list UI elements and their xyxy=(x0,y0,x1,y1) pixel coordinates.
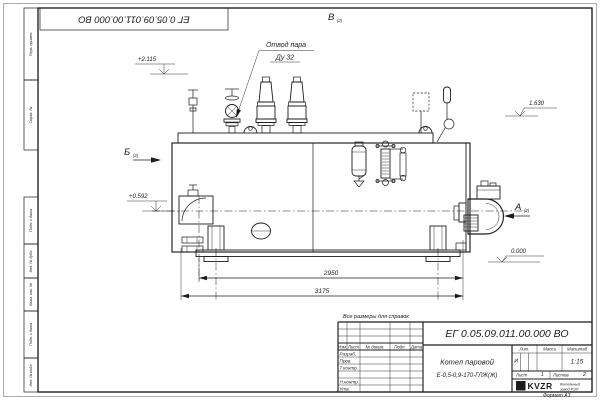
scale-value: 1:15 xyxy=(571,359,584,366)
scale-label: Масштаб xyxy=(567,347,588,352)
doc-number: ЕГ 0.05.09.011.00.000 ВО xyxy=(445,328,568,340)
drawing-canvas: Перв. примен. Справ. № Подп. и дата Инв.… xyxy=(0,0,600,400)
sheet-label: Лист xyxy=(515,373,527,378)
col-list: Лист xyxy=(347,344,359,349)
margin-label: Взам. инв. № xyxy=(29,283,33,306)
margin-label: Инв. № подл. xyxy=(29,364,33,387)
lifting-lug-left xyxy=(244,127,257,134)
view-labels: В (2) Б (2) А (2) xyxy=(124,12,530,219)
col-izm: Изм. xyxy=(338,344,347,349)
company-line2: завод РЭП xyxy=(559,388,579,392)
dimensions: 2950 3175 xyxy=(181,240,463,300)
elevation-zero: 0.000 xyxy=(488,249,544,262)
view-label-b: Б xyxy=(124,147,130,158)
view-ref-b: (2) xyxy=(133,153,139,158)
margin-label: Перв. примен. xyxy=(29,32,33,57)
row-utv: Утв. xyxy=(340,386,350,391)
margin-boxes: Перв. примен. Справ. № Подп. и дата Инв.… xyxy=(24,8,38,392)
company-logo-text: KVZR xyxy=(528,381,553,391)
skid-frame xyxy=(196,250,460,257)
svg-text:1.630: 1.630 xyxy=(529,101,545,107)
col-doc: № докум. xyxy=(366,344,385,349)
elevation-right: 1.630 xyxy=(505,101,557,116)
callout-line1: Отвод пара xyxy=(266,41,306,49)
view-ref-a: (2) xyxy=(524,208,530,213)
top-fittings xyxy=(224,77,432,133)
rear-stub xyxy=(456,243,466,250)
view-arrow-a xyxy=(504,213,514,218)
margin-label: Справ. № xyxy=(29,107,33,124)
product-model: Е-0,5-0,9-170-ГЛЖ(Ж) xyxy=(437,373,498,379)
view-ref-v: (2) xyxy=(337,18,343,23)
elbow-arc xyxy=(182,198,206,221)
top-plate xyxy=(178,133,433,143)
lit-label: Лит. xyxy=(518,347,529,352)
shell-body xyxy=(172,143,470,252)
svg-text:+2.115: +2.115 xyxy=(138,57,157,63)
row-prov: Пров. xyxy=(340,358,352,363)
burner-motor xyxy=(477,186,500,199)
sensor-box-dashed xyxy=(413,93,429,111)
kvzr-logo-letter: К xyxy=(519,383,524,390)
view-label-a: А xyxy=(514,202,521,213)
product-name: Котел паровой xyxy=(440,358,495,367)
elbow-flange xyxy=(188,190,198,196)
steam-outlet-callout: Отвод пара Ду 32 xyxy=(234,41,314,119)
elevation-top: +2.115 xyxy=(135,57,188,74)
svg-text:+0.592: +0.592 xyxy=(129,194,148,200)
separator-vessel xyxy=(352,142,366,187)
level-probe xyxy=(437,87,454,142)
elevation-marks: +2.115 +0.592 1.630 0.000 xyxy=(127,57,557,262)
boiler-shell xyxy=(172,133,470,257)
safety-valve-1 xyxy=(256,77,276,133)
margin-label: Инв. № дубл. xyxy=(29,250,33,273)
right-fittings xyxy=(352,87,454,187)
sheets-value: 2 xyxy=(582,372,586,378)
sheets-label: Листов xyxy=(552,373,569,378)
blowdown-stub-1 xyxy=(182,237,203,243)
lit-value: И xyxy=(514,359,518,365)
burner-flange-1 xyxy=(454,206,459,220)
corner-number-text: ЕГ 0.05.09.011.00.000 ВО xyxy=(78,14,190,25)
view-label-v: В xyxy=(328,12,335,23)
view-arrow-b xyxy=(151,157,161,162)
drain-tap xyxy=(189,98,197,105)
margin-label: Подп. и дата xyxy=(29,209,33,232)
mass-label: Масса xyxy=(543,347,556,352)
dim-3175: 3175 xyxy=(315,288,330,295)
row-razrab: Разраб. xyxy=(340,351,357,356)
blowdown-stub-2 xyxy=(182,246,203,252)
elevation-axis: +0.592 xyxy=(127,194,175,211)
reference-note: Все размеры для справок xyxy=(343,314,409,320)
water-level-gauge xyxy=(376,141,406,186)
corner-doc-number: ЕГ 0.05.09.011.00.000 ВО xyxy=(40,8,228,30)
sheet-value: 1 xyxy=(541,372,544,378)
dim-2950: 2950 xyxy=(323,270,339,277)
title-block: ЕГ 0.05.09.011.00.000 ВО Котел паровой Е… xyxy=(338,322,592,392)
row-tkontr: Т.контр. xyxy=(340,365,359,370)
row-nkontr: Н.контр. xyxy=(340,379,359,384)
format-label: Формат А3 xyxy=(543,393,571,399)
drawing-sheet: Перв. примен. Справ. № Подп. и дата Инв.… xyxy=(0,0,600,400)
burner xyxy=(454,181,504,250)
col-sign: Подп. xyxy=(394,344,405,349)
margin-label: Подп. и дата xyxy=(29,323,33,346)
col-date: Дата xyxy=(410,344,423,349)
callout-line2: Ду 32 xyxy=(275,55,294,62)
handwheel xyxy=(226,96,239,100)
company-line1: Котельный xyxy=(560,383,580,387)
boiler-drawing xyxy=(152,77,527,302)
gauge-glass-tube xyxy=(400,153,406,176)
burner-flange-2 xyxy=(459,203,466,222)
burner-housing xyxy=(468,199,504,234)
safety-valve-2 xyxy=(287,77,307,133)
svg-text:0.000: 0.000 xyxy=(511,249,527,255)
